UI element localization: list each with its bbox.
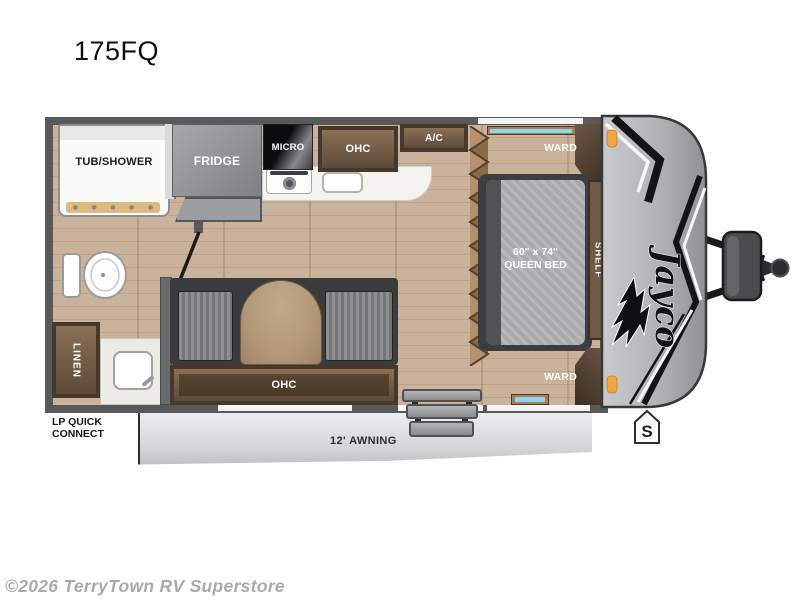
lp-quick-connect-label: LP QUICK CONNECT	[52, 417, 104, 440]
linen-cabinet: LINEN	[52, 322, 100, 398]
bedroom-window-sill	[487, 126, 577, 135]
marker-light-bottom-icon	[607, 376, 617, 393]
tub-shower: TUB/SHOWER	[58, 124, 170, 217]
dinette-bench-right	[325, 291, 393, 361]
dinette-bench-left	[178, 291, 233, 361]
entry-step-2	[406, 404, 478, 419]
bed-label: 60" x 74" QUEEN BED	[486, 246, 585, 272]
dinette-ohc-panel: OHC	[179, 374, 389, 396]
watermark: ©2026 TerryTown RV Superstore	[5, 576, 285, 597]
page-title: 175FQ	[74, 36, 159, 67]
fridge-base-step	[175, 197, 262, 222]
hitch-ball-icon	[772, 260, 789, 277]
front-cap: Jayco	[600, 114, 712, 410]
marker-light-top-icon	[607, 130, 617, 147]
stove-burner-icon	[283, 177, 296, 190]
floorplan-page: 175FQ 12' AWNING LP QUICK CONNECT TUB/SH…	[0, 0, 800, 600]
dinette-overhead-cabinet: OHC	[170, 365, 398, 405]
bottom-window-strip-left	[218, 405, 352, 411]
bedroom-window-bottom-glass	[515, 397, 545, 402]
kitchen-overhead-cabinet: OHC	[318, 126, 398, 172]
entry-step-1	[402, 389, 482, 402]
bedroom-window-top	[478, 118, 583, 124]
toilet-icon	[62, 248, 128, 303]
ac-unit: A/C	[400, 124, 468, 152]
spare-tire-marker-label: S	[641, 422, 652, 441]
microwave-label: MICRO	[264, 125, 312, 169]
jayco-logo-text: Jayco	[648, 244, 687, 348]
ac-label: A/C	[425, 133, 443, 144]
bed-type-label: QUEEN BED	[486, 259, 585, 272]
bedroom-window-bottom	[511, 394, 549, 405]
linen-label: LINEN	[56, 326, 96, 394]
wardrobe-top-label: WARD	[531, 142, 577, 154]
fridge-label: FRIDGE	[173, 125, 261, 196]
bedroom-window-glass	[490, 129, 572, 133]
trailer-body: TUB/SHOWER LINEN FRIDGE	[45, 117, 608, 413]
microwave: MICRO	[263, 124, 313, 170]
awning-label: 12' AWNING	[330, 435, 397, 447]
kitchen-ohc-label: OHC	[345, 143, 370, 155]
entry-step-3	[409, 421, 474, 437]
stove-control-bar	[270, 171, 308, 175]
propane-tank-highlight	[727, 236, 739, 296]
tub-shower-label: TUB/SHOWER	[60, 156, 168, 168]
lp-line1: LP QUICK	[52, 417, 104, 429]
stove-icon	[266, 168, 312, 194]
dinette-table	[240, 280, 322, 365]
bed-size-label: 60" x 74"	[486, 246, 585, 259]
bottom-window-strip-right	[487, 405, 590, 411]
fridge: FRIDGE	[172, 124, 262, 197]
spare-tire-marker: S	[633, 410, 661, 446]
kitchen-sink-icon	[322, 172, 363, 193]
dinette-ohc-label: OHC	[271, 379, 296, 391]
wardrobe-bottom-label: WARD	[531, 371, 577, 383]
lp-line2: CONNECT	[52, 429, 104, 441]
shower-curtain-track-icon	[66, 202, 160, 213]
